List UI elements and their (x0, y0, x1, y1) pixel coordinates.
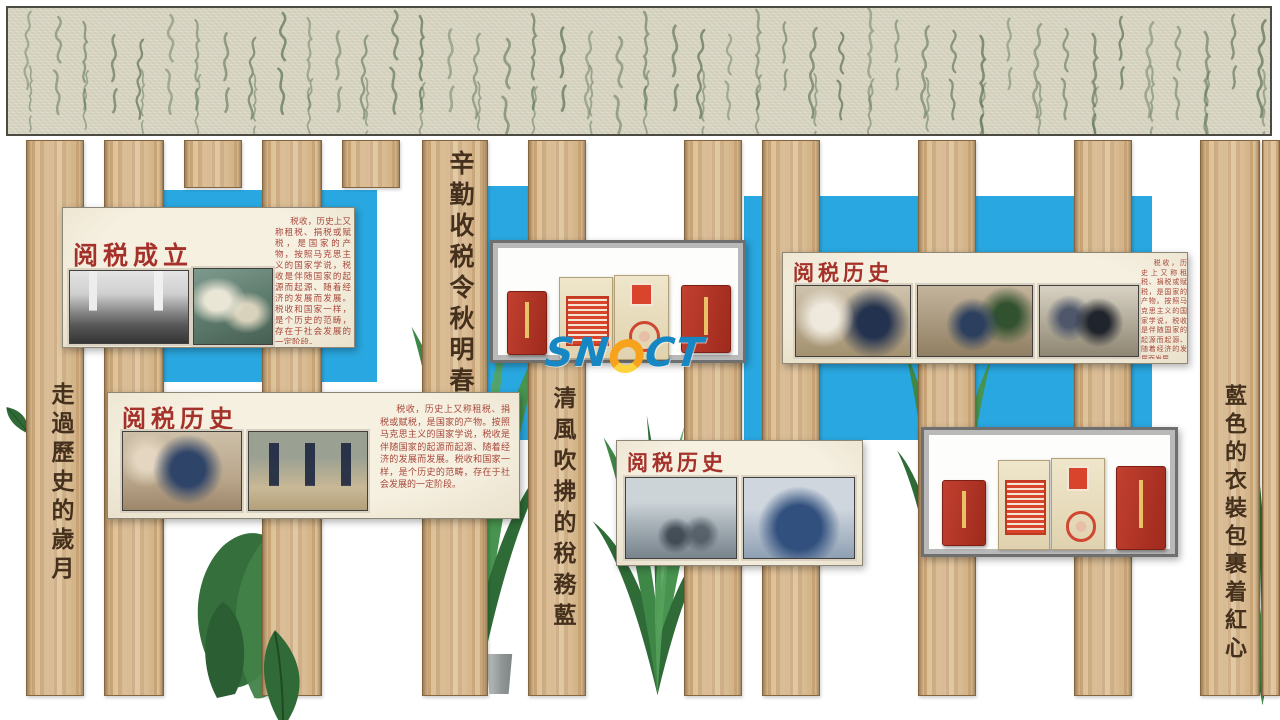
tax-exhibition-wall: 辛勤收税令秋明春 走過歷史的歲月 清風吹拂的稅務藍 藍色的衣裝包裹着紅心 阅税成… (0, 0, 1280, 720)
photo-office-desks (917, 285, 1033, 357)
calligraphy-glyph (590, 66, 593, 134)
calligraphy-glyph (783, 22, 787, 89)
calligraphy-glyph (166, 15, 173, 114)
logo-text-left: SN (543, 330, 612, 376)
plank-text-blue-uniform: 藍色的衣裝包裹着紅心 (1218, 384, 1250, 664)
panel-history-bottom-title: 阅税历史 (627, 447, 727, 477)
calligraphy-glyph (366, 78, 369, 134)
red-seal-square-icon (630, 283, 653, 306)
panel-establish-title: 阅税成立 (73, 236, 193, 272)
wood-plank (684, 140, 742, 696)
calligraphy-strokes (8, 8, 1270, 134)
book-label-band (525, 302, 529, 338)
calligraphy-glyph (1151, 66, 1154, 134)
red-book (1116, 466, 1166, 550)
photo-meeting-crowd (1039, 285, 1139, 357)
stamped-document (998, 460, 1050, 550)
calligraphy-glyph (756, 75, 761, 134)
calligraphy-glyph (391, 11, 398, 113)
wood-plank (1262, 140, 1280, 696)
red-book (942, 480, 986, 546)
display-case-right (921, 427, 1178, 557)
photo-office-counter (795, 285, 911, 357)
red-seal-square-icon (1067, 466, 1090, 491)
photo-bicycle-brigade (625, 477, 737, 559)
plant-pot (484, 654, 514, 694)
logo-ring-icon (608, 339, 646, 373)
calligraphy-glyph (1007, 19, 1011, 89)
calligraphy-glyph (838, 33, 844, 119)
calligraphy-glyph (449, 30, 454, 111)
panel-history-bottom: 阅税历史 (616, 440, 863, 566)
photo-officer-with-papers (122, 431, 242, 511)
photo-group-blue-uniform (743, 477, 855, 559)
panel-history-left-body: 税收，历史上又称租税、捐税或赋税，是国家的产物。按照马克思主义的国家学说，税收是… (380, 403, 510, 513)
photo-officers-marching (248, 431, 368, 511)
calligraphy-glyph (336, 31, 340, 111)
calligraphy-glyph (814, 74, 817, 134)
panel-establish-body: 税收，历史上又称租税、捐税或赋税，是国家的产物，按照马克思主义的国家学说，税收是… (275, 216, 351, 344)
calligraphy-glyph (361, 36, 368, 119)
sealed-document (1051, 458, 1105, 550)
calligraphy-glyph (702, 70, 705, 134)
calligraphy-glyph (926, 78, 929, 134)
red-stamp-icon (1005, 480, 1046, 535)
calligraphy-glyph (1263, 70, 1266, 134)
wood-plank (918, 140, 976, 696)
calligraphy-glyph (1038, 82, 1041, 134)
snqct-logo: SN CT (543, 330, 707, 376)
calligraphy-glyph (950, 31, 956, 119)
red-seal-circle-icon (1066, 511, 1097, 542)
calligraphy-glyph (29, 66, 32, 131)
calligraphy-banner (6, 6, 1272, 136)
logo-text-right: CT (643, 330, 706, 376)
book-label-band (1139, 480, 1143, 528)
wood-plank (762, 140, 820, 696)
red-book (507, 291, 547, 355)
calligraphy-glyph (895, 21, 899, 90)
calligraphy-glyph (1232, 15, 1236, 88)
calligraphy-glyph (25, 12, 31, 89)
calligraphy-glyph (1174, 27, 1180, 119)
wood-plank (342, 140, 400, 188)
calligraphy-glyph (224, 33, 228, 111)
calligraphy-glyph (54, 17, 61, 114)
calligraphy-glyph (725, 35, 731, 120)
calligraphy-glyph (615, 37, 622, 134)
plank-text-diligent: 辛勤收税令秋明春 (442, 150, 478, 398)
wood-plank (184, 140, 242, 188)
plank-text-breeze: 清風吹拂的稅務藍 (545, 386, 579, 634)
calligraphy-glyph (1062, 29, 1068, 119)
calligraphy-glyph (478, 82, 481, 134)
panel-establish: 阅税成立 税收，历史上又称租税、捐税或赋税，是国家的产物，按照马克思主义的国家学… (62, 207, 355, 348)
wood-plank (1074, 140, 1132, 696)
panel-history-right: 阅税历史 税收，历史上又称租税、捐税或赋税，是国家的产物。按照马克思主义的国家学… (782, 252, 1188, 364)
calligraphy-glyph (112, 35, 116, 112)
calligraphy-glyph (1120, 17, 1124, 89)
panel-history-right-body: 税收，历史上又称租税、捐税或赋税，是国家的产物。按照马克思主义的国家学说，税收是… (1141, 259, 1187, 359)
calligraphy-glyph (503, 39, 510, 134)
calligraphy-glyph (673, 26, 678, 110)
calligraphy-glyph (142, 70, 145, 134)
panel-history-left: 阅税历史 税收，历史上又称租税、捐税或赋税，是国家的产物。按照马克思主义的国家学… (107, 392, 520, 519)
photo-officers-outdoor (193, 268, 273, 345)
book-label-band (962, 491, 966, 528)
plank-text-history-years: 走過歷史的歲月 (43, 382, 77, 585)
calligraphy-glyph (644, 71, 649, 134)
calligraphy-glyph (254, 74, 257, 134)
photo-bw-founding-group (69, 270, 189, 344)
panel-history-right-title: 阅税历史 (793, 257, 893, 287)
panel-history-left-title: 阅税历史 (122, 399, 238, 434)
calligraphy-glyph (278, 13, 285, 114)
calligraphy-glyph (561, 28, 566, 111)
